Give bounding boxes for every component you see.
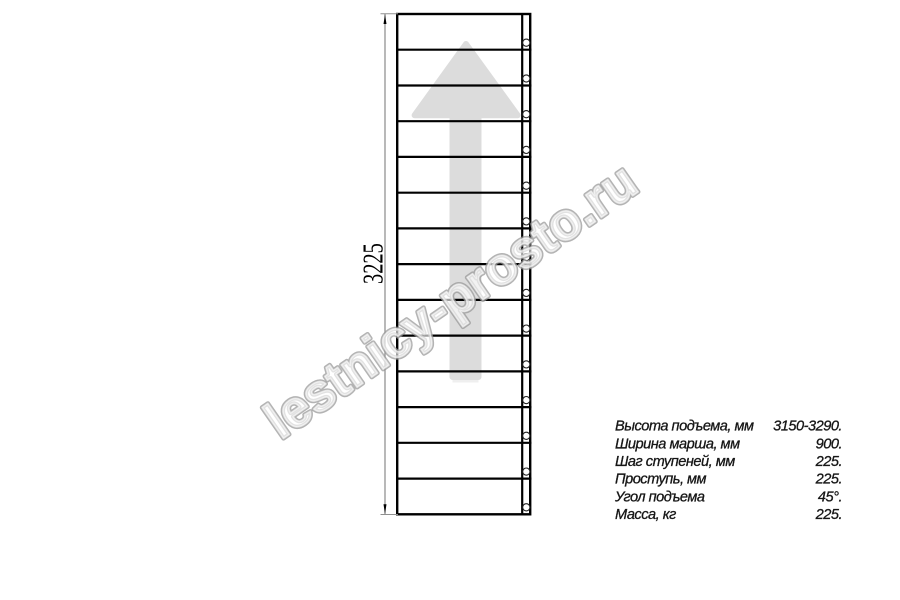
- svg-text:Шаг ступеней, мм: Шаг ступеней, мм: [615, 454, 735, 470]
- svg-text:3225: 3225: [359, 243, 390, 284]
- svg-text:Ширина марша, мм: Ширина марша, мм: [615, 436, 740, 452]
- svg-text:Угол подъема: Угол подъема: [614, 489, 705, 505]
- svg-text:225.: 225.: [815, 472, 842, 488]
- svg-text:225.: 225.: [815, 454, 842, 470]
- svg-text:Проступь, мм: Проступь, мм: [615, 472, 707, 488]
- svg-text:900.: 900.: [816, 436, 842, 452]
- svg-text:Масса, кг: Масса, кг: [615, 507, 676, 523]
- svg-text:Высота подъема, мм: Высота подъема, мм: [615, 419, 754, 435]
- svg-text:45°.: 45°.: [818, 489, 842, 505]
- svg-text:3150-3290.: 3150-3290.: [773, 419, 842, 435]
- svg-text:225.: 225.: [815, 507, 842, 523]
